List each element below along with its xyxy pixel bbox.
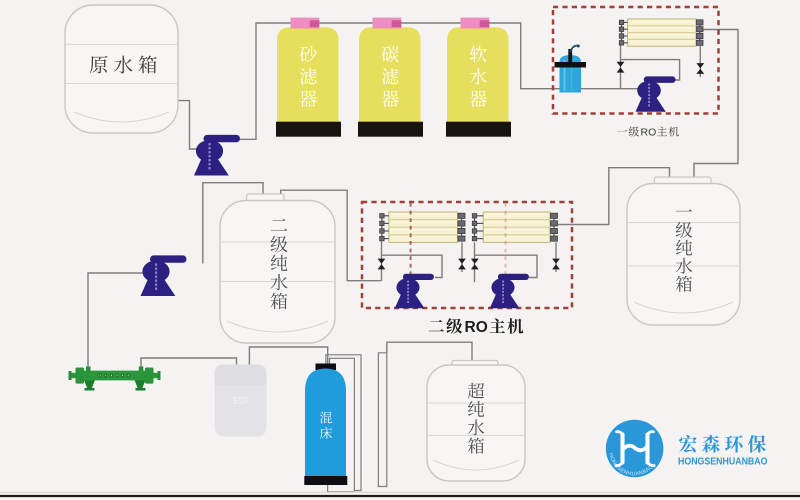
svg-text:RO: RO (465, 319, 488, 336)
svg-text:RO: RO (641, 126, 657, 138)
svg-text:HONGSENHUANBAO: HONGSENHUANBAO (678, 456, 768, 468)
svg-text:EDI: EDI (233, 396, 248, 406)
